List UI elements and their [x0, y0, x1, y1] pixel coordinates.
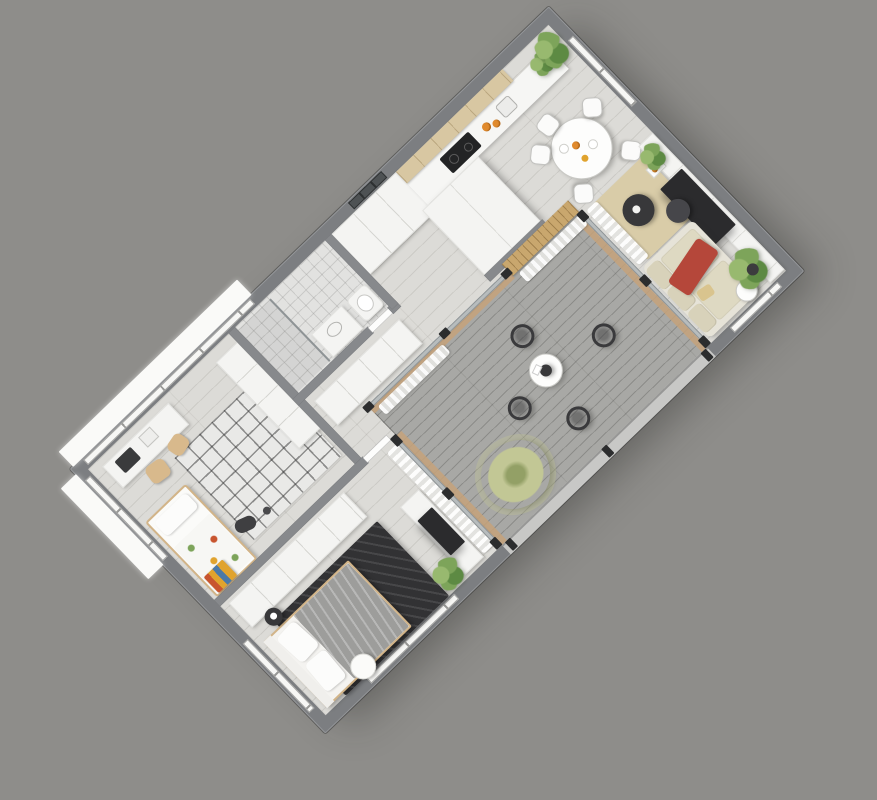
dining-chair — [529, 144, 551, 166]
floorplan-scene — [0, 0, 877, 800]
dining-chair — [582, 97, 603, 118]
apartment-render — [70, 6, 805, 733]
